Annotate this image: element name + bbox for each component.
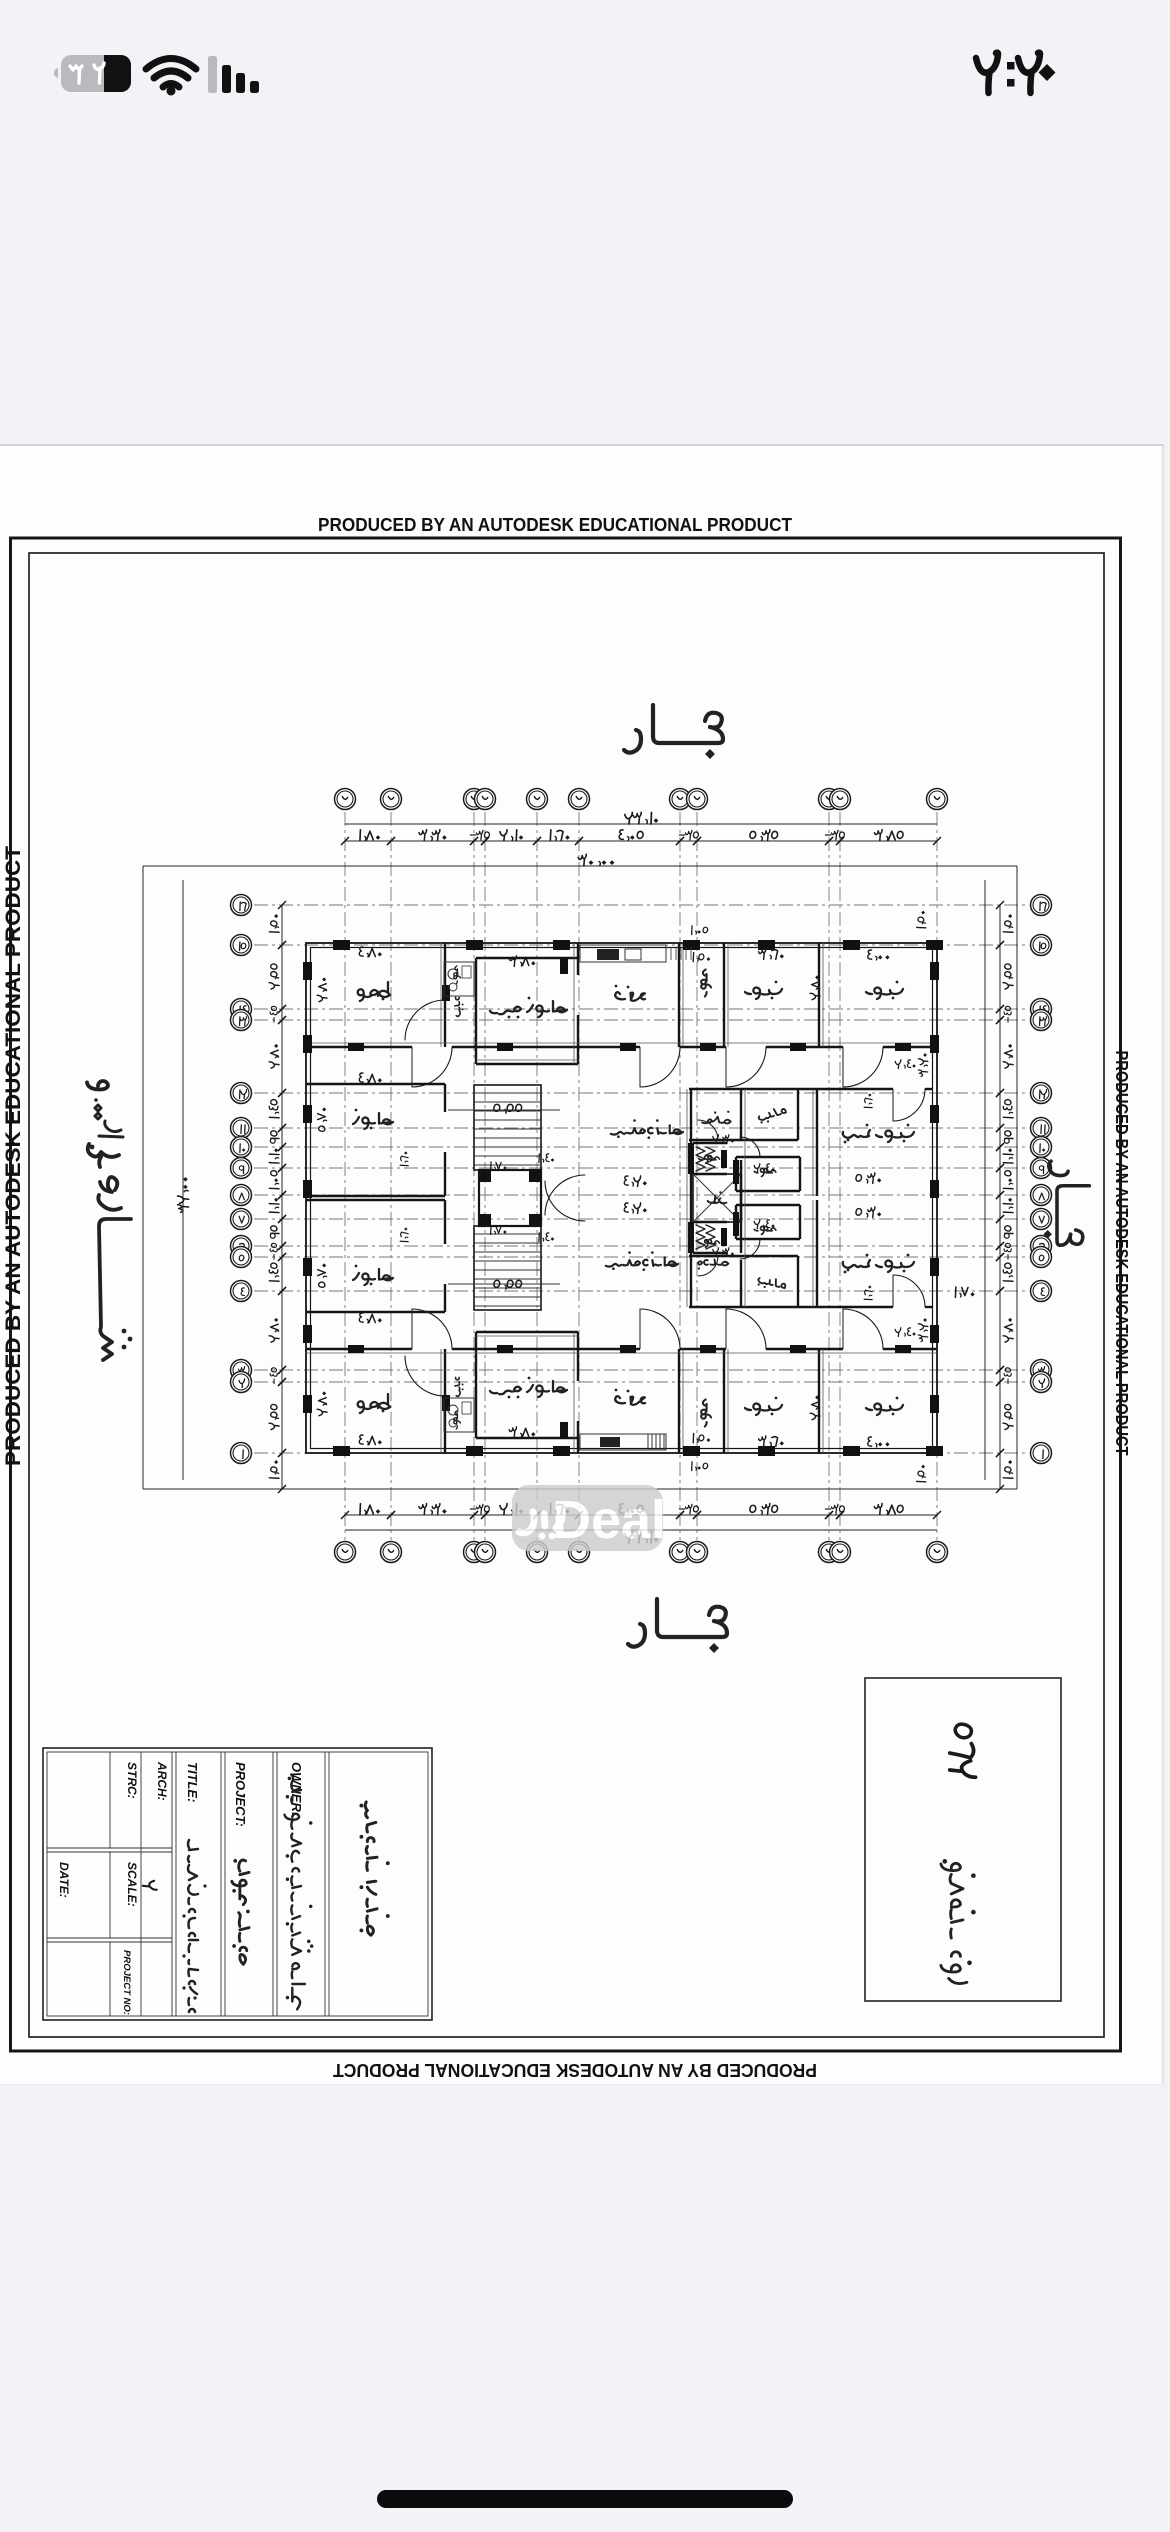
svg-text:PROJECT:: PROJECT: (233, 1762, 248, 1827)
svg-text:Deal: Deal (552, 1490, 666, 1550)
svg-text:PRODUCED BY AN AUTODESK EDUCAT: PRODUCED BY AN AUTODESK EDUCATIONAL PROD… (318, 515, 792, 535)
svg-text:SCALE:: SCALE: (125, 1862, 139, 1907)
svg-text:PRODUCED BY AN AUTODESK EDUCAT: PRODUCED BY AN AUTODESK EDUCATIONAL PROD… (333, 2060, 817, 2080)
svg-text:TITLE:: TITLE: (185, 1762, 200, 1802)
svg-text:STRC:: STRC: (125, 1762, 139, 1799)
svg-text:PRODUCED BY AN AUTODESK EDUCAT: PRODUCED BY AN AUTODESK EDUCATIONAL PROD… (2, 846, 25, 1466)
svg-text:DATE:: DATE: (57, 1862, 71, 1898)
svg-text:PRODUCED BY AN AUTODESK EDUCAT: PRODUCED BY AN AUTODESK EDUCATIONAL PROD… (1112, 1051, 1132, 1456)
svg-text:PROJECT NO:: PROJECT NO: (121, 1950, 132, 2015)
svg-text:ARCH:: ARCH: (155, 1761, 169, 1801)
